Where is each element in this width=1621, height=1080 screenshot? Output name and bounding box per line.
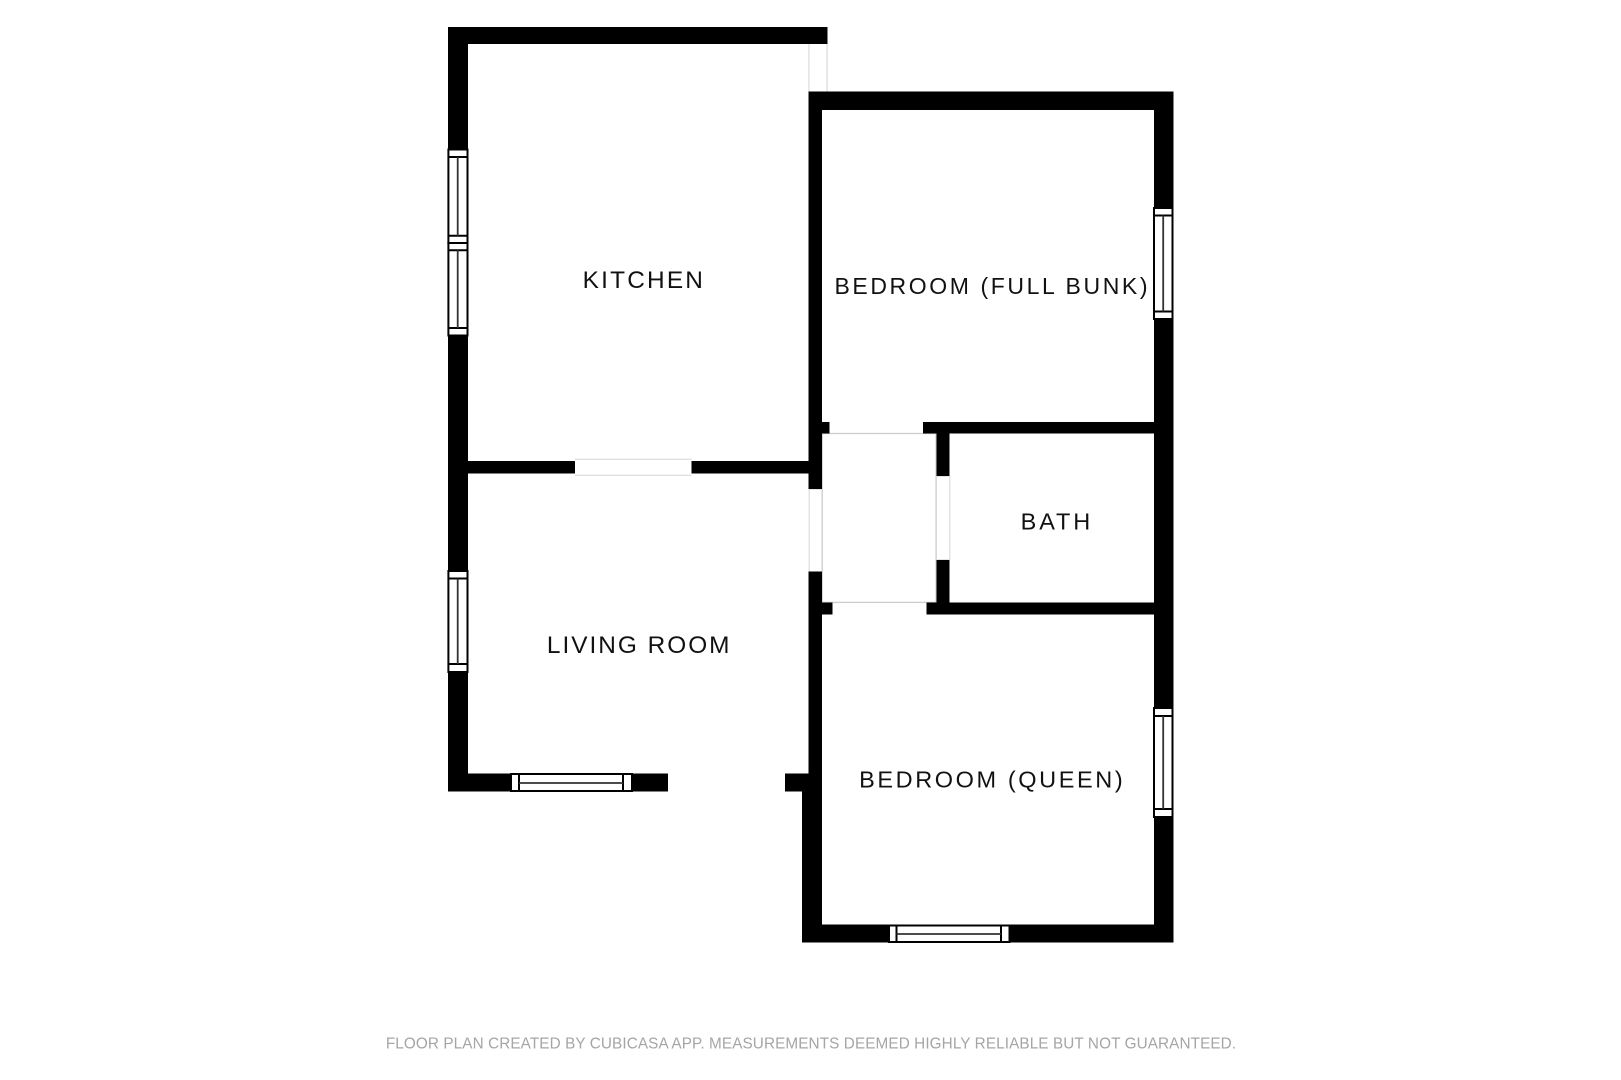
- svg-text:BEDROOM (FULL BUNK): BEDROOM (FULL BUNK): [834, 273, 1150, 299]
- svg-text:LIVING ROOM: LIVING ROOM: [547, 632, 732, 659]
- svg-text:BATH: BATH: [1021, 509, 1094, 535]
- svg-text:FLOOR PLAN CREATED BY CUBICASA: FLOOR PLAN CREATED BY CUBICASA APP. MEAS…: [386, 1035, 1236, 1052]
- svg-text:BEDROOM (QUEEN): BEDROOM (QUEEN): [859, 767, 1125, 793]
- svg-text:KITCHEN: KITCHEN: [583, 267, 705, 294]
